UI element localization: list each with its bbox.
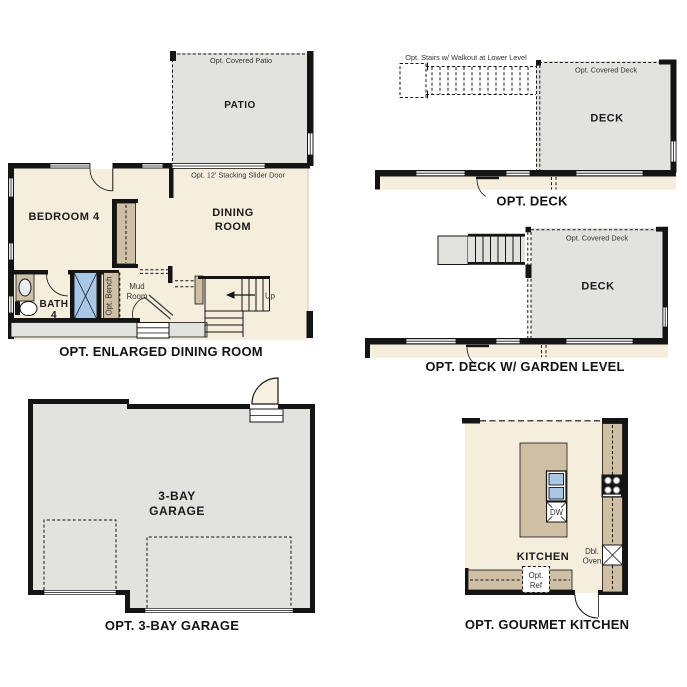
double-oven: [603, 545, 623, 565]
covered-deck-label: Opt. Covered Deck: [566, 234, 628, 243]
island-sink: [547, 471, 567, 501]
bath-sink: [16, 274, 34, 301]
patio-label: PATIO: [224, 100, 256, 111]
dbl-oven-label-1: Dbl.: [585, 547, 599, 556]
dw-label: DW: [550, 508, 564, 517]
deck-area: Opt. Covered Deck DECK: [536, 60, 677, 173]
service-door-swing: [250, 378, 283, 422]
floorplan-canvas: Opt. Covered Patio PATIO: [0, 0, 687, 687]
caption-garage: OPT. 3-BAY GARAGE: [105, 618, 239, 633]
plan-opt-enlarged-dining-room: Opt. Covered Patio PATIO: [8, 51, 314, 359]
garage-label-2: GARAGE: [149, 504, 205, 518]
up-label: Up: [265, 292, 276, 301]
caption-enlarged-dining: OPT. ENLARGED DINING ROOM: [59, 344, 263, 359]
dining-label-1: DINING: [212, 207, 254, 219]
deck-label: DECK: [581, 281, 614, 293]
covered-patio-label: Opt. Covered Patio: [210, 56, 272, 65]
garage-label-1: 3-BAY: [158, 489, 195, 503]
cooktop: [602, 475, 623, 498]
closet: [112, 199, 138, 268]
porch-steps: [11, 323, 207, 339]
mud-label-1: Mud: [129, 282, 144, 291]
slider-door-label: Opt. 12' Stacking Slider Door: [191, 171, 285, 180]
kitchen-door-swing: [575, 595, 599, 618]
covered-deck-label: Opt. Covered Deck: [575, 66, 637, 75]
stairs-walkout-label: Opt. Stairs w/ Walkout at Lower Level: [405, 53, 527, 62]
deck-area: Opt. Covered Deck DECK: [526, 227, 669, 340]
caption-gourmet-kitchen: OPT. GOURMET KITCHEN: [465, 617, 629, 632]
deck-label: DECK: [590, 113, 623, 125]
bench-label: Opt. Bench: [105, 276, 114, 315]
toilet: [15, 302, 37, 316]
dbl-oven-label-2: Oven: [583, 557, 602, 566]
garden-stairs: [438, 234, 525, 265]
opt-ref-label-2: Ref: [530, 581, 543, 590]
opt-stairs-dashed: [400, 63, 537, 99]
dishwasher: DW: [547, 502, 567, 522]
opt-bench: Opt. Bench: [104, 273, 120, 320]
bedroom4-label: BEDROOM 4: [28, 211, 100, 223]
kitchen-label: KITCHEN: [517, 551, 569, 563]
hall-wall: [169, 168, 174, 198]
plan-opt-gourmet-kitchen: Dbl. Oven DW KITCHEN Opt.: [462, 418, 629, 632]
plan-opt-3bay-garage: 3-BAY GARAGE OPT. 3-BAY GARAGE: [28, 378, 315, 633]
bottom-counter: Opt. Ref: [468, 567, 572, 593]
bath-label-1: BATH: [39, 299, 68, 310]
dining-label-2: ROOM: [215, 221, 251, 233]
plan-opt-deck: Opt. Stairs w/ Walkout at Lower Level: [375, 53, 677, 209]
caption-deck: OPT. DECK: [496, 194, 568, 209]
shower: [70, 270, 102, 322]
opt-refrigerator: Opt. Ref: [523, 567, 550, 593]
patio-area: Opt. Covered Patio PATIO: [170, 51, 314, 166]
floorplan-options-sheet: Opt. Covered Patio PATIO: [0, 0, 687, 687]
caption-deck-garden: OPT. DECK W/ GARDEN LEVEL: [425, 359, 624, 374]
mud-label-2: Room: [127, 292, 148, 301]
plan-opt-deck-garden-level: Opt. Covered Deck DECK OPT. DECK W/ GARD…: [365, 227, 668, 374]
opt-ref-label-1: Opt.: [529, 571, 544, 580]
island: DW: [520, 443, 567, 537]
